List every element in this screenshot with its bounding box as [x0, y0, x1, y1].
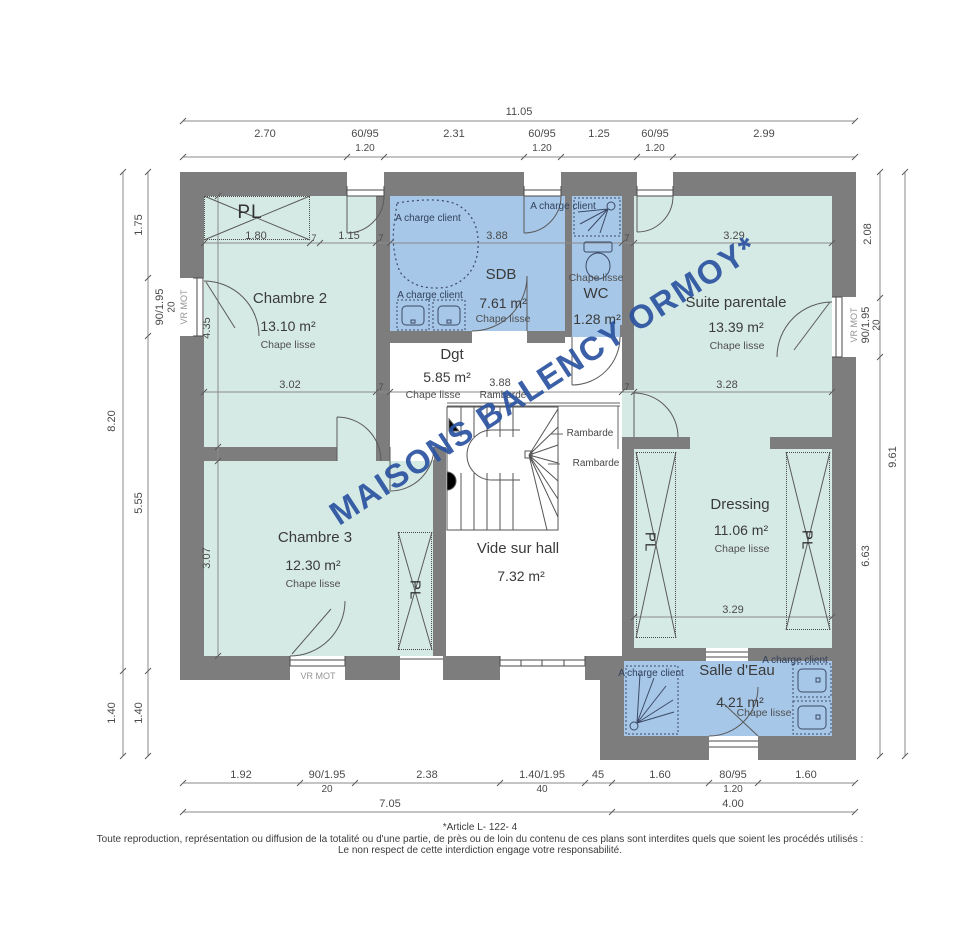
floor-plan: 11.05 2.70 60/95 1.20 2.31 60/95 1.20 1.… [0, 0, 960, 926]
door-arc-suite [634, 393, 678, 437]
salle-eau-sinks [793, 664, 831, 734]
client-charge-label: A charge client [762, 655, 828, 666]
footer-notice-line2: Le non respect de cette interdiction eng… [0, 845, 960, 856]
room-area-chambre2: 13.10 m² [260, 318, 315, 334]
dim-label: 1.25 [588, 128, 609, 140]
stair-direction-marker [447, 472, 456, 490]
dim-label: 1.40 [133, 702, 145, 723]
dim-label: 1.80 [245, 230, 266, 242]
dim-label: 20 [321, 784, 332, 795]
room-floor-suite: Chape lisse [710, 340, 765, 352]
dim-label: 60/95 [351, 128, 379, 140]
dim-label: 7.05 [379, 798, 400, 810]
room-name-dressing: Dressing [710, 496, 769, 513]
dim-label: 4.35 [201, 317, 213, 338]
dim-label: 1.20 [723, 784, 742, 795]
dim-label: 3.29 [722, 604, 743, 616]
dim-wall-thickness: 7 [378, 233, 383, 243]
railing-label: Rambarde [567, 428, 614, 439]
room-area-dressing: 11.06 m² [714, 522, 768, 538]
room-name-vide: Vide sur hall [477, 540, 559, 557]
dim-label: 1.92 [230, 769, 251, 781]
client-charge-label: A charge client [618, 668, 684, 679]
client-charge-label: A charge client [395, 213, 461, 224]
plan-linework [0, 0, 960, 926]
room-floor-salle-eau: Chape lisse [737, 707, 792, 719]
room-name-wc: WC [584, 285, 609, 302]
dim-label: 1.40/1.95 [519, 769, 565, 781]
door-arc-chambre2 [337, 417, 381, 461]
dim-label: 8.20 [106, 410, 118, 431]
room-floor-dressing: Chape lisse [715, 543, 770, 555]
dim-label: 3.28 [716, 379, 737, 391]
dim-label: 1.20 [645, 143, 664, 154]
dim-label: 1.15 [338, 230, 359, 242]
dim-label: 1.75 [133, 214, 145, 235]
dim-label: 80/95 [719, 769, 747, 781]
client-charge-label: A charge client [530, 201, 596, 212]
sdb-sinks [397, 300, 465, 330]
dim-label: 2.08 [862, 223, 874, 244]
footer-article: *Article L- 122- 4 [0, 822, 960, 833]
room-name-dgt: Dgt [440, 346, 463, 363]
client-charge-label: A charge client [397, 290, 463, 301]
dim-label: 6.63 [860, 545, 872, 566]
dim-wall-thickness: 7 [311, 233, 316, 243]
room-area-sdb: 7.61 m² [479, 295, 526, 311]
closet-label: PL [237, 202, 262, 224]
dim-label: 2.38 [416, 769, 437, 781]
dim-label: 90/1.95 [309, 769, 346, 781]
dim-label: 40 [536, 784, 547, 795]
dim-label: 90/1.95 [860, 307, 872, 344]
footer-notice-line1: Toute reproduction, représentation ou di… [0, 834, 960, 845]
dim-wall-thickness: 7 [624, 382, 629, 392]
dim-label: 1.20 [355, 143, 374, 154]
room-name-chambre3: Chambre 3 [278, 529, 352, 546]
dim-label: 20 [872, 319, 883, 330]
dim-label: 60/95 [641, 128, 669, 140]
room-floor-chambre3: Chape lisse [286, 578, 341, 590]
dim-label: 20 [167, 301, 178, 312]
dim-label: 2.99 [753, 128, 774, 140]
shutter-label: VR MOT [301, 671, 336, 681]
room-name-chambre2: Chambre 2 [253, 290, 327, 307]
room-floor-dgt: Chape lisse [406, 389, 461, 401]
dim-label: 2.31 [443, 128, 464, 140]
dim-label: 3.07 [201, 547, 213, 568]
dim-wall-thickness: 7 [624, 233, 629, 243]
shutter-label: VR MOT [849, 308, 859, 343]
dim-label: 2.70 [254, 128, 275, 140]
room-area-vide: 7.32 m² [497, 568, 544, 584]
dim-label: 1.40 [106, 702, 118, 723]
dim-label: 45 [592, 769, 604, 781]
dim-label: 90/1.95 [154, 289, 166, 326]
dim-label: 4.00 [722, 798, 743, 810]
dim-wall-thickness: 7 [378, 382, 383, 392]
door-arc-window-top-3 [637, 196, 673, 232]
dim-label: 9.61 [887, 446, 899, 467]
door-arc-window-top-1 [347, 196, 384, 233]
railing-label: Rambarde [573, 458, 620, 469]
room-floor-wc: Chape lisse [569, 272, 624, 284]
room-area-dgt: 5.85 m² [423, 369, 470, 385]
dim-label: 1.60 [795, 769, 816, 781]
room-area-chambre3: 12.30 m² [285, 557, 340, 573]
dim-overall-width: 11.05 [506, 106, 533, 118]
closet-label: PL [407, 580, 424, 600]
dim-label: 1.60 [649, 769, 670, 781]
dim-label: 5.55 [133, 492, 145, 513]
shutter-label: VR MOT [179, 290, 189, 325]
door-arcs [204, 196, 832, 736]
door-arc-window-chambre3 [290, 601, 345, 656]
room-floor-sdb: Chape lisse [476, 313, 531, 325]
dim-label: 1.20 [532, 143, 551, 154]
closet-label: PL [799, 530, 816, 550]
room-area-suite: 13.39 m² [708, 319, 763, 335]
dim-label: 60/95 [528, 128, 556, 140]
dim-label: 3.88 [486, 230, 507, 242]
closet-label: PL [642, 532, 659, 552]
dim-label: 3.02 [279, 379, 300, 391]
room-name-sdb: SDB [486, 266, 517, 283]
room-floor-chambre2: Chape lisse [261, 339, 316, 351]
